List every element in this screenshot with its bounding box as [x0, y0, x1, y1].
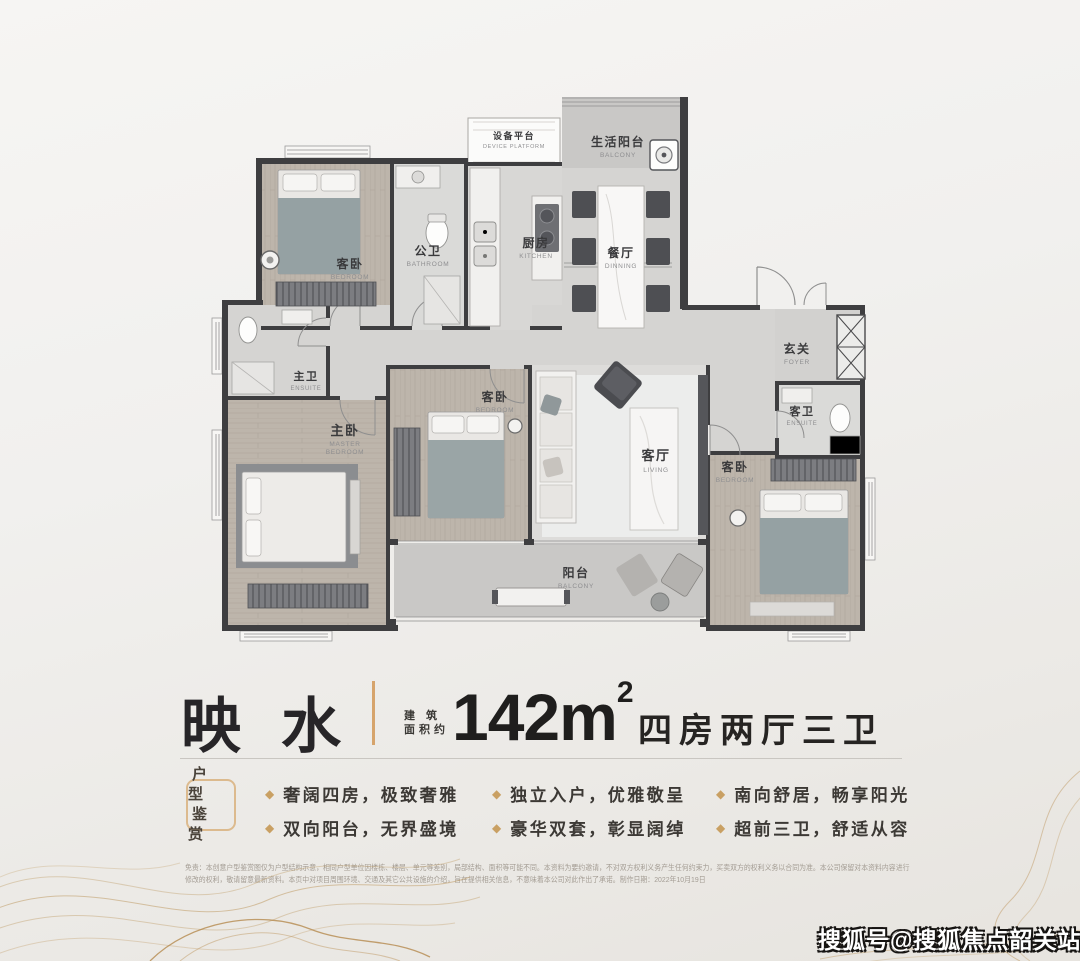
- svg-text:客卧: 客卧: [480, 389, 508, 404]
- svg-text:生活阳台: 生活阳台: [591, 134, 645, 149]
- svg-text:客厅: 客厅: [641, 448, 670, 463]
- room-label-guest-ensuite: 客卫 ENSUITE: [787, 404, 818, 427]
- svg-text:BATHROOM: BATHROOM: [407, 261, 450, 268]
- svg-text:BEDROOM: BEDROOM: [476, 407, 515, 414]
- watermark: 搜狐号@搜狐焦点韶关站: [818, 921, 1080, 955]
- svg-text:餐厅: 餐厅: [607, 245, 634, 260]
- svg-text:LIVING: LIVING: [643, 467, 669, 474]
- furniture-bedroom-mid: [394, 412, 522, 518]
- svg-text:客卧: 客卧: [335, 256, 363, 271]
- room-label-bedroom-mid: 客卧 BEDROOM: [476, 389, 515, 414]
- svg-text:ENSUITE: ENSUITE: [787, 421, 818, 427]
- poster-root: 设备平台 DEVICE PLATFORM 生活阳台 BALCONY 客卧 BED…: [0, 0, 1080, 961]
- svg-text:BALCONY: BALCONY: [558, 583, 594, 590]
- shaft-column: [837, 315, 865, 379]
- svg-text:客卧: 客卧: [720, 459, 748, 474]
- svg-text:厨房: 厨房: [522, 235, 549, 250]
- furniture-life-balcony: [650, 140, 678, 170]
- room-label-bedroom-nw: 客卧 BEDROOM: [331, 256, 370, 281]
- furniture-master-bedroom: [236, 464, 368, 608]
- svg-text:客卫: 客卫: [789, 404, 815, 418]
- room-label-kitchen: 厨房 KITCHEN: [519, 235, 552, 260]
- svg-text:BEDROOM: BEDROOM: [331, 274, 370, 281]
- floor-plan: 设备平台 DEVICE PLATFORM 生活阳台 BALCONY 客卧 BED…: [190, 78, 890, 658]
- svg-text:BEDROOM: BEDROOM: [716, 477, 755, 484]
- room-label-living: 客厅 LIVING: [641, 448, 670, 474]
- svg-text:阳台: 阳台: [562, 565, 589, 580]
- room-label-master-ensuite: 主卫 ENSUITE: [291, 369, 322, 392]
- svg-text:主卫: 主卫: [294, 369, 319, 383]
- svg-text:DINNING: DINNING: [605, 263, 637, 270]
- room-label-balcony: 阳台 BALCONY: [558, 565, 594, 590]
- furniture-bedroom-nw: [261, 170, 376, 306]
- room-label-dining: 餐厅 DINNING: [605, 245, 637, 270]
- svg-text:FOYER: FOYER: [784, 359, 810, 366]
- svg-text:公卫: 公卫: [414, 244, 441, 258]
- svg-text:玄关: 玄关: [783, 341, 810, 356]
- svg-text:设备平台: 设备平台: [493, 130, 535, 141]
- svg-text:ENSUITE: ENSUITE: [291, 386, 322, 392]
- area-superscript: 2: [617, 676, 634, 709]
- svg-text:MASTER: MASTER: [329, 441, 360, 448]
- room-label-bedroom-se: 客卧 BEDROOM: [716, 459, 755, 484]
- room-label-foyer: 玄关 FOYER: [783, 341, 810, 366]
- svg-text:DEVICE PLATFORM: DEVICE PLATFORM: [483, 144, 545, 150]
- svg-text:BALCONY: BALCONY: [600, 152, 636, 159]
- svg-text:主卧: 主卧: [330, 423, 359, 438]
- area-label-line1: 建 筑: [404, 709, 449, 723]
- svg-text:KITCHEN: KITCHEN: [519, 253, 552, 260]
- svg-text:BEDROOM: BEDROOM: [326, 449, 365, 456]
